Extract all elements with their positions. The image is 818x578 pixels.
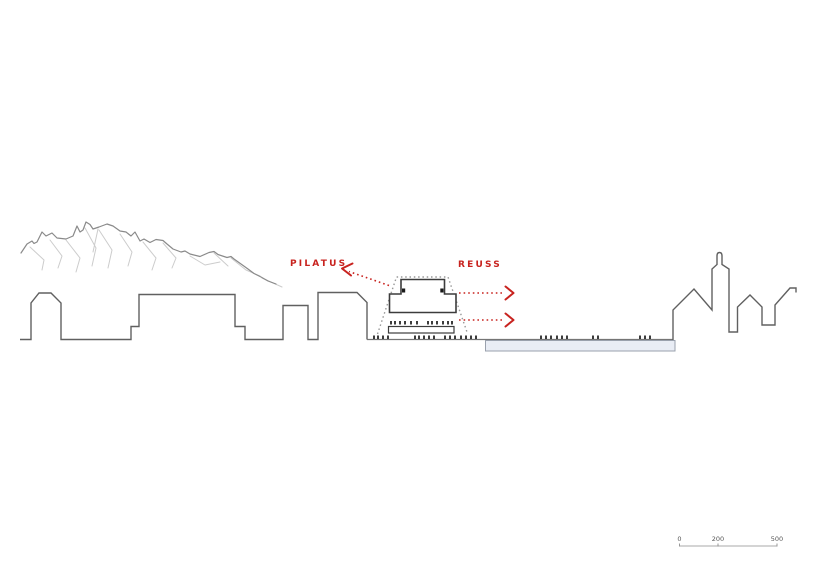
arrow-right-icon bbox=[506, 314, 514, 327]
scale-label-200: 200 bbox=[712, 535, 724, 543]
building-people-row bbox=[391, 321, 452, 325]
annotation-reuss: REUSS bbox=[458, 260, 514, 327]
building-window-left bbox=[402, 289, 405, 293]
ground-people bbox=[374, 336, 650, 340]
arrow-right-icon bbox=[506, 287, 514, 300]
pilatus-arrow-tail bbox=[349, 272, 389, 286]
pilatus-arrow bbox=[342, 264, 389, 286]
scale-label-500: 500 bbox=[771, 535, 783, 543]
building-window-right bbox=[440, 289, 443, 293]
right-skyline-church bbox=[673, 253, 796, 341]
pilatus-mountain bbox=[21, 222, 282, 287]
left-skyline bbox=[20, 293, 367, 340]
proposed-building bbox=[378, 277, 468, 334]
building-outline bbox=[390, 280, 457, 313]
annotation-pilatus: PILATUS bbox=[290, 259, 389, 286]
building-platform bbox=[389, 327, 455, 334]
scale-bar: 0 200 500 bbox=[677, 535, 783, 547]
reuss-label: REUSS bbox=[458, 260, 502, 270]
reuss-arrows bbox=[459, 287, 514, 327]
scale-label-0: 0 bbox=[677, 535, 681, 543]
water-basin bbox=[486, 341, 676, 352]
diagram-canvas: PILATUS REUSS 0 200 500 bbox=[0, 0, 818, 578]
pilatus-label: PILATUS bbox=[290, 259, 347, 269]
mountain-hatch-lines bbox=[30, 228, 282, 287]
section-elevation-drawing: PILATUS REUSS 0 200 500 bbox=[0, 0, 818, 578]
